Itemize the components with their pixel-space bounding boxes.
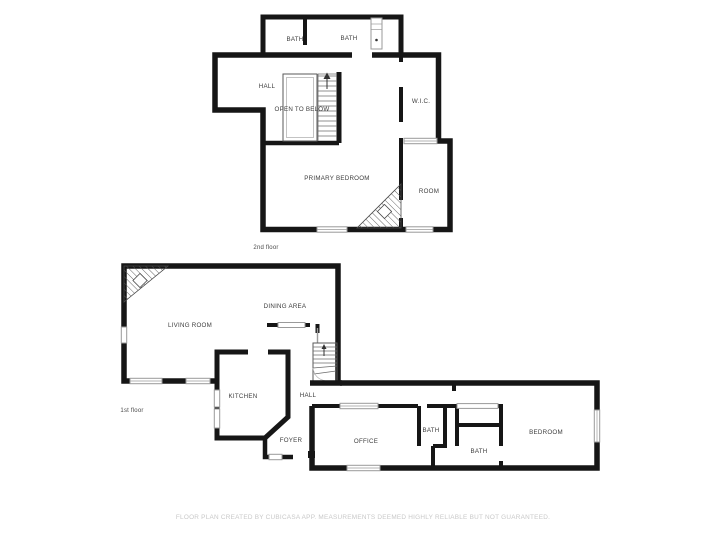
room-label-primary-bedroom: PRIMARY BEDROOM [304,175,369,182]
room-label-dining-area: DINING AREA [264,303,307,310]
floor1-stairs [313,343,337,381]
floor2-wic-door-gap-2 [397,122,405,138]
room-label-bedroom: BEDROOM [529,429,563,436]
disclaimer-text: FLOOR PLAN CREATED BY CUBICASA APP. MEAS… [176,514,550,521]
room-label-hall-1f: HALL [300,392,317,399]
room-label-foyer: FOYER [280,437,303,444]
room-label-bath-1f-upper: BATH [422,427,439,434]
floor2-wic-door-gap-1 [397,62,405,87]
floor1-fireplace [124,266,168,302]
room-label-bath-1f-lower: BATH [470,448,487,455]
floor1-wing-walls [312,383,597,468]
floor2-fireplace [357,184,401,228]
room-label-wic: W.I.C. [412,98,430,105]
kitchen-door-gap [248,348,268,356]
room-label-bath-2f-right: BATH [340,35,357,42]
room-label-open-to-below: OPEN TO BELOW [275,106,330,113]
floor2-top-door-gap [352,51,372,60]
bath-closet-detail [371,18,382,49]
room-label-office: OFFICE [354,438,378,445]
floor1-caption: 1st floor [120,408,143,414]
floorplan-svg: BATH BATH HALL OPEN TO BELOW W.I.C. PRIM… [0,0,720,540]
floor1-windows [121,327,599,471]
room-label-room: ROOM [419,188,439,195]
room-label-living-room: LIVING ROOM [168,322,212,329]
dining-rail-opening [278,323,305,328]
second-floor-plan [215,17,450,232]
room-label-bath-2f-left: BATH [286,36,303,43]
room-label-hall-2f: HALL [259,83,276,90]
room-label-kitchen: KITCHEN [229,393,258,400]
floor2-caption: 2nd floor [253,245,278,251]
